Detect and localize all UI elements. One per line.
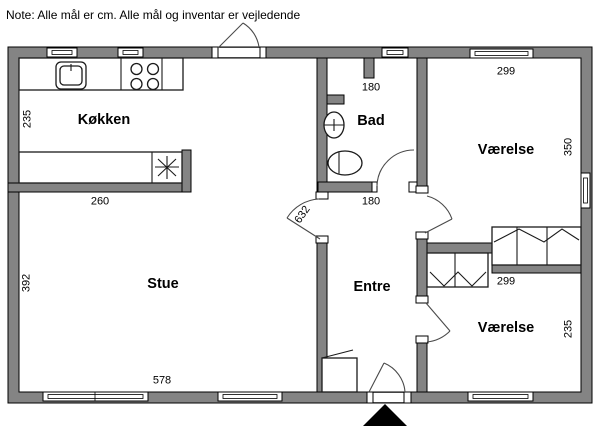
dim-kitchen-height: 235 (23, 110, 34, 128)
kitchen-door-leaf (218, 23, 243, 48)
floor-plan: Note: Alle mål er cm. Alle mål og invent… (0, 0, 600, 428)
window (468, 392, 533, 401)
dim-bath-bottom: 180 (362, 197, 380, 208)
kitchen-sink-icon (56, 62, 86, 89)
wardrobe-top-bedroom (492, 227, 581, 265)
wall-bath-bottom (318, 182, 372, 192)
wall-entry-bedroom-low (417, 343, 427, 392)
window (118, 48, 143, 57)
room-label-living: Stue (147, 277, 178, 292)
entrance-arrow-icon (363, 404, 407, 426)
plan-note: Note: Alle mål er cm. Alle mål og invent… (6, 8, 300, 22)
dim-living-width: 578 (153, 376, 171, 387)
room-label-kitchen: Køkken (78, 113, 130, 128)
outer-walls (8, 47, 592, 403)
room-label-bedroom-top: Værelse (478, 143, 534, 158)
dim-bedroom-top-height: 350 (564, 138, 575, 156)
cooktop-asterisk-icon (155, 156, 179, 179)
window (218, 392, 282, 401)
dim-living-height: 392 (22, 274, 33, 292)
wall-island-cap (182, 150, 191, 192)
dim-bedroom-top-width: 299 (497, 67, 515, 78)
wall-bath-bedroom (417, 58, 427, 186)
wardrobe-bottom-bedroom (427, 253, 488, 287)
window (470, 49, 533, 58)
dim-kitchen-width: 260 (91, 197, 109, 208)
wall-bath-stub-vertical (364, 58, 374, 78)
dim-bedroom-bottom-height: 235 (564, 320, 575, 338)
window (47, 48, 77, 57)
room-label-bedroom-bottom: Værelse (478, 321, 534, 336)
kitchen-door-arc (243, 23, 259, 47)
window (382, 48, 408, 57)
dim-bath-top: 180 (362, 83, 380, 94)
wall-between-bedrooms (427, 243, 492, 253)
washbasin-icon (324, 112, 344, 138)
window (43, 392, 148, 401)
dim-bedroom-bottom-width: 299 (497, 277, 515, 288)
wall-bath-stub-horizontal (327, 95, 344, 104)
toilet-icon (328, 151, 362, 175)
window (581, 173, 590, 208)
wall-kitchen-living (8, 183, 191, 192)
wall-entry-bedroom-mid (417, 239, 427, 296)
wall-under-wardrobe (492, 265, 581, 273)
room-label-bath: Bad (357, 114, 384, 129)
room-label-entry: Entre (353, 280, 390, 295)
